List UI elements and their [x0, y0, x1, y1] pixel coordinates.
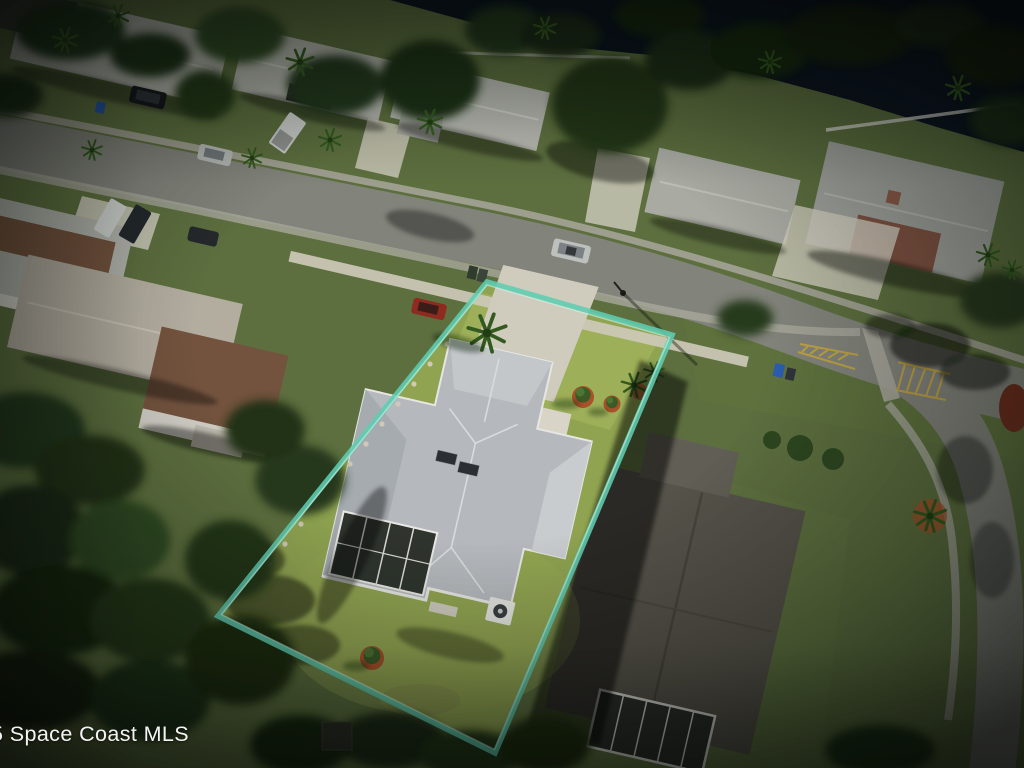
backyard-shed — [322, 722, 352, 750]
watermark: 5 Space Coast MLS — [0, 722, 189, 747]
aerial-scene — [0, 0, 1024, 768]
aerial-listing-photo: 5 Space Coast MLS — [0, 0, 1024, 768]
